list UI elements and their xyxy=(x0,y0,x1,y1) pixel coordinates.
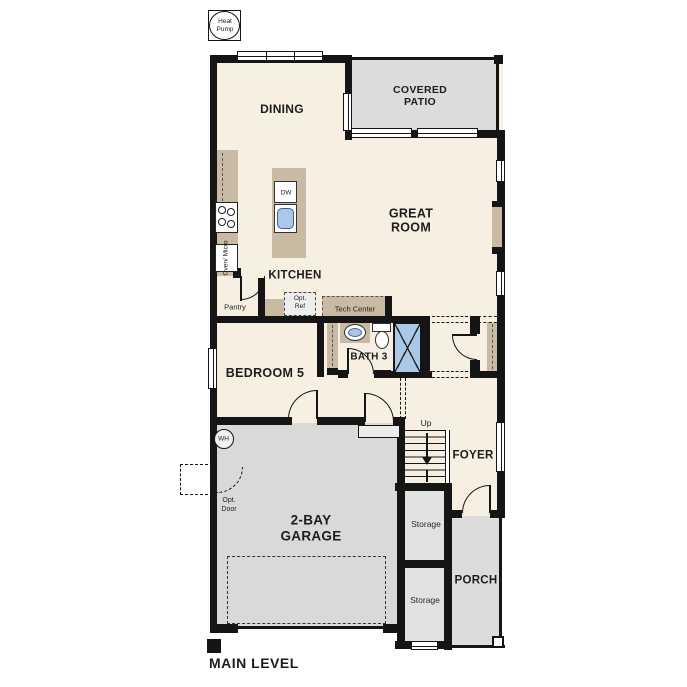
stair-rail xyxy=(445,430,450,483)
garage-step xyxy=(358,425,400,438)
opt-ref-line1: Opt. xyxy=(294,295,306,303)
tech-center-label: Tech Center xyxy=(335,306,375,315)
dining-side-window xyxy=(343,93,352,131)
garage-door-line xyxy=(235,626,385,629)
cased-opening xyxy=(432,316,468,323)
wall xyxy=(210,55,217,633)
level-marker xyxy=(207,639,221,653)
garage-line2: GARAGE xyxy=(280,528,341,544)
dishwasher: DW xyxy=(274,181,297,203)
porch-label: PORCH xyxy=(454,574,497,587)
water-heater-symbol: WH xyxy=(214,429,234,449)
wall xyxy=(397,420,405,648)
wall xyxy=(444,483,452,513)
burner-icon xyxy=(227,220,235,228)
shower xyxy=(393,322,422,374)
heat-pump-line1: Heat xyxy=(217,18,234,26)
bedroom5-label: BEDROOM 5 xyxy=(226,366,304,380)
covered-patio-label: COVERED PATIO xyxy=(393,84,447,108)
dining-label: DINING xyxy=(260,103,304,117)
great-room-label: GREAT ROOM xyxy=(389,207,433,236)
up-label: Up xyxy=(421,419,432,429)
great-room-line2: ROOM xyxy=(389,221,433,235)
cased-opening xyxy=(432,371,468,378)
wall xyxy=(397,560,448,568)
porch-post xyxy=(492,636,504,648)
floor-plan: Oven/ Micro DW Heat Pump xyxy=(0,0,687,687)
dishwasher-label: DW xyxy=(280,189,293,196)
sink-basin xyxy=(348,328,362,337)
cooktop xyxy=(215,202,238,233)
patio-slider-window xyxy=(351,128,412,138)
wall xyxy=(422,316,430,378)
heat-pump-line2: Pump xyxy=(217,26,234,34)
garage-clearance-dashed xyxy=(227,556,386,624)
heat-pump-label: Heat Pump xyxy=(217,18,234,34)
wall xyxy=(210,417,292,425)
opt-door-stoop xyxy=(180,464,213,495)
dashed-centerline xyxy=(332,325,333,366)
main-level-title: MAIN LEVEL xyxy=(209,655,299,671)
wall xyxy=(395,483,450,491)
fireplace-cap xyxy=(492,247,505,254)
water-heater-label: WH xyxy=(218,435,229,442)
window-mullion xyxy=(266,52,267,60)
cased-opening xyxy=(478,316,497,323)
porch-edge xyxy=(499,518,502,648)
opt-ref-line2: Ref xyxy=(294,303,306,311)
foyer-label: FOYER xyxy=(452,449,493,462)
kitchen-label: KITCHEN xyxy=(268,269,321,282)
great-room-window xyxy=(496,271,505,296)
opt-door-line1: Opt. xyxy=(221,496,236,505)
patio-slider-window xyxy=(417,128,478,138)
wall xyxy=(470,360,480,378)
wall xyxy=(327,368,338,375)
stair-arrow-tail xyxy=(426,470,428,482)
bath3-label: BATH 3 xyxy=(350,351,387,363)
opt-door-line2: Door xyxy=(221,505,236,514)
cased-opening xyxy=(400,378,406,419)
pantry-label: Pantry xyxy=(224,304,246,313)
upper-cabinet-dashed-line xyxy=(222,153,223,201)
covered-patio-line1: COVERED xyxy=(393,84,447,96)
dashed-centerline xyxy=(492,324,493,369)
storage-window xyxy=(411,641,438,650)
oven-micro-line2: Micro xyxy=(222,240,229,256)
bedroom-window xyxy=(208,348,217,389)
toilet-bowl xyxy=(375,331,389,349)
dining-window xyxy=(237,51,323,61)
bath-sink xyxy=(344,324,366,341)
wall xyxy=(374,370,391,378)
storage-upper-label: Storage xyxy=(411,520,441,530)
heat-pump-symbol: Heat Pump xyxy=(208,10,241,41)
oven-micro-label: Oven/ Micro xyxy=(222,240,229,275)
wall xyxy=(444,510,452,650)
garage-line1: 2-BAY xyxy=(280,512,341,528)
wall xyxy=(385,296,392,316)
storage-lower-label: Storage xyxy=(410,596,440,606)
covered-patio-line2: PATIO xyxy=(393,96,447,108)
wall xyxy=(210,624,238,633)
wall xyxy=(317,316,324,377)
sink-basin xyxy=(277,208,294,229)
island-sink xyxy=(274,204,297,233)
stair-direction-arrow xyxy=(426,433,428,458)
burner-icon xyxy=(218,206,226,214)
great-room-window xyxy=(496,160,505,182)
arrow-head-icon xyxy=(422,457,432,465)
opt-ref-label: Opt. Ref xyxy=(294,295,306,311)
wall xyxy=(490,510,505,518)
wall xyxy=(480,371,498,378)
foyer-window xyxy=(496,422,505,472)
patio-edge xyxy=(352,57,498,60)
patio-edge xyxy=(496,57,499,133)
wall xyxy=(317,417,365,425)
fireplace-niche xyxy=(492,207,502,248)
window-mullion xyxy=(294,52,295,60)
opt-door-label: Opt. Door xyxy=(221,496,236,514)
oven-micro-line1: Oven/ xyxy=(222,258,229,275)
great-room-line1: GREAT xyxy=(389,207,433,221)
garage-label: 2-BAY GARAGE xyxy=(280,512,341,543)
burner-icon xyxy=(227,208,235,216)
burner-icon xyxy=(218,218,226,226)
